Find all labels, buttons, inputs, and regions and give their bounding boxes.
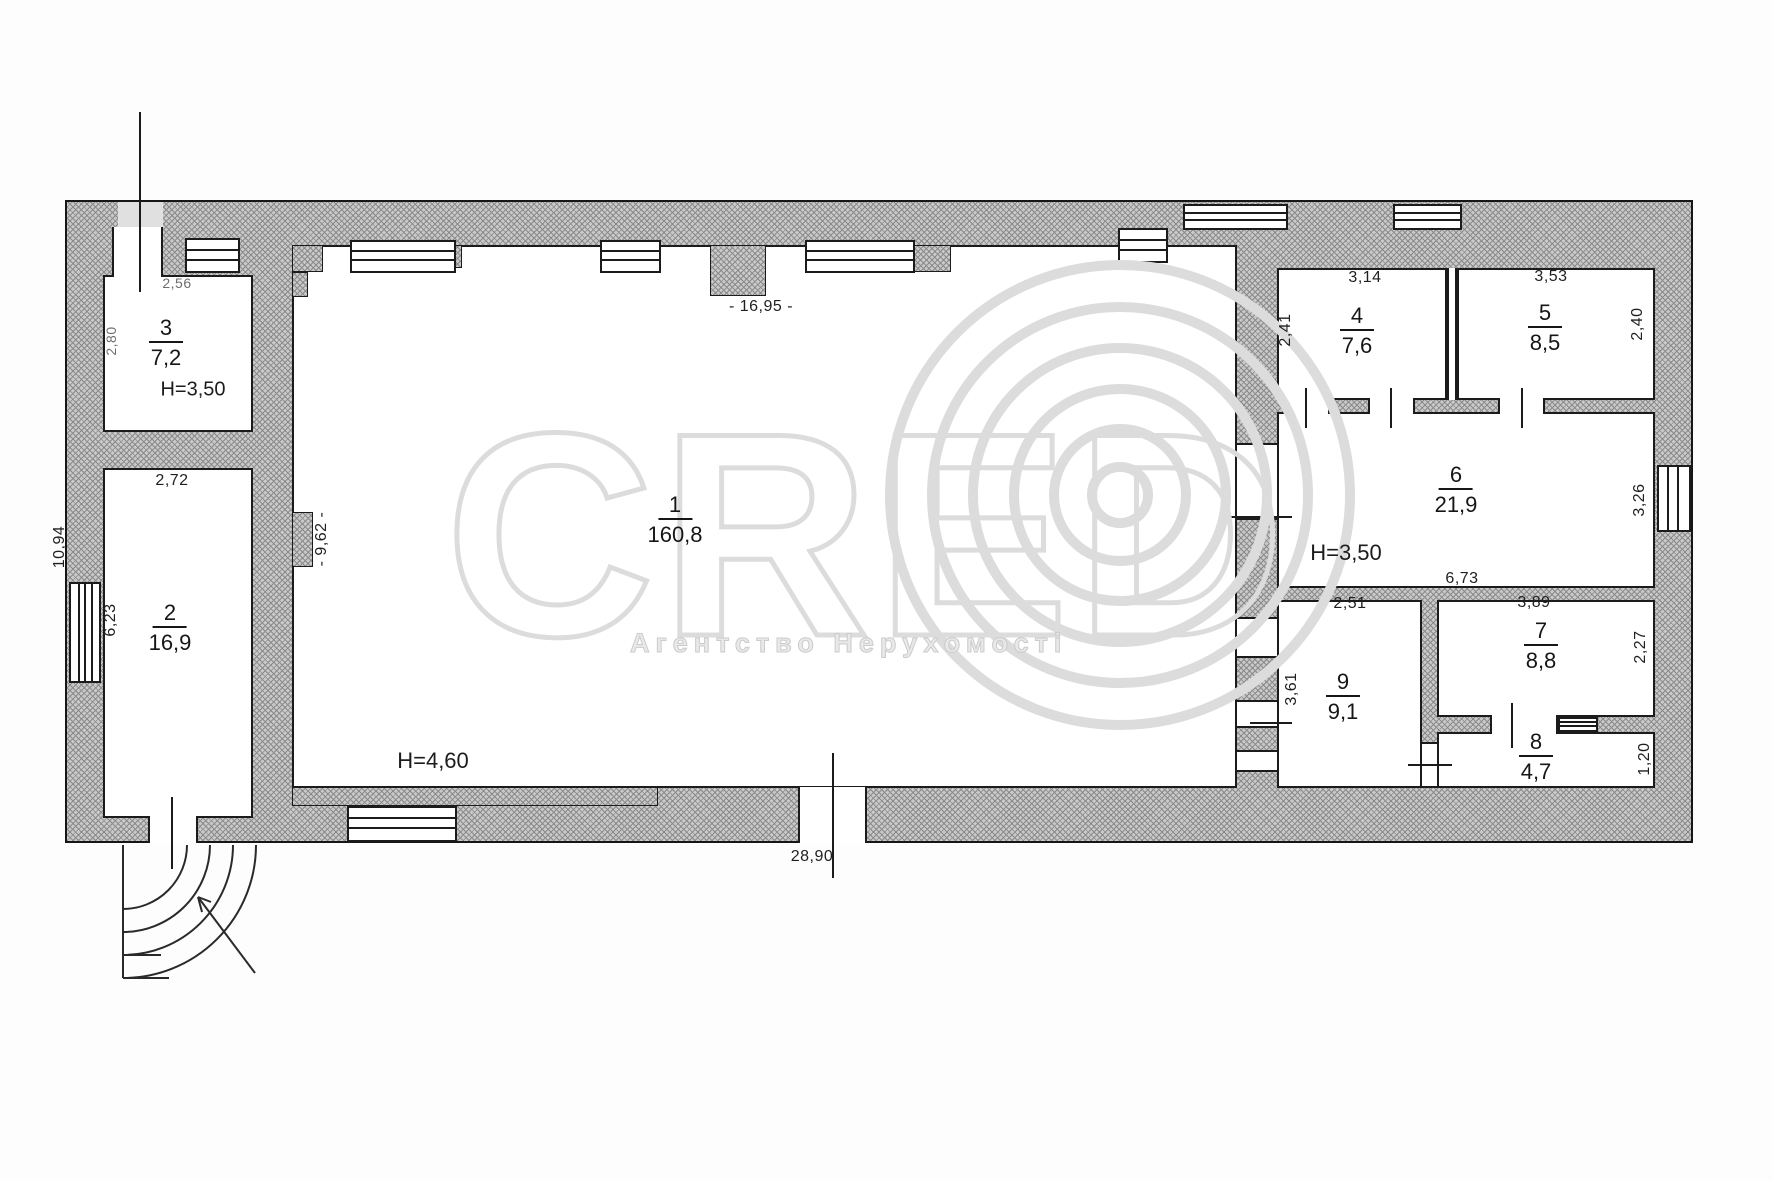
room-7-area: 8,8	[1524, 646, 1558, 673]
wall-step-bottom	[292, 787, 658, 806]
room-7-label: 7 8,8	[1524, 618, 1558, 674]
room-1-area: 160,8	[647, 520, 702, 547]
dim-room2-window: 6,23	[102, 603, 120, 636]
wall-notch-top-center	[710, 245, 766, 296]
dim-room6-width: 6,73	[1445, 570, 1478, 588]
dim-left-outer: 10,94	[51, 526, 69, 569]
door-room2-bottom	[148, 816, 198, 843]
room-5-number: 5	[1528, 300, 1562, 328]
window-top-5	[1118, 228, 1168, 263]
dim-top-width: - 16,95 -	[729, 298, 793, 316]
window-top-4	[805, 240, 915, 273]
room-3-area: 7,2	[149, 343, 183, 370]
dim-bottom-width: 28,90	[791, 848, 834, 866]
dim-room9-width: 2,51	[1333, 595, 1366, 613]
window-top-3	[600, 240, 661, 273]
window-top-2	[350, 240, 456, 273]
height-label-room3: H=3,50	[160, 379, 225, 402]
wall-bump-left	[292, 512, 313, 567]
room-6-number: 6	[1439, 462, 1473, 490]
room-1-number: 1	[658, 492, 692, 520]
door-hall-right-4	[1237, 750, 1277, 772]
height-label-hall: H=4,60	[397, 748, 469, 774]
dim-room9-depth: 3,61	[1283, 672, 1301, 705]
tick-room9-door	[1408, 764, 1452, 766]
room-4-area: 7,6	[1340, 331, 1374, 358]
tick-hall-right-door-1	[1222, 516, 1292, 518]
room-9-area: 9,1	[1326, 697, 1360, 724]
room-7-number: 7	[1524, 618, 1558, 646]
room-8-number: 8	[1519, 729, 1553, 757]
wall-step-top-left-1	[292, 245, 323, 272]
window-bottom-wall	[347, 806, 457, 842]
wall-step-top-left-2	[292, 272, 308, 297]
partition-room4-room5	[1447, 268, 1457, 400]
dim-room5-depth: 2,40	[1629, 307, 1647, 340]
window-top-1	[185, 238, 240, 273]
tick-room4-door-b	[1390, 388, 1392, 428]
room-1	[292, 245, 1237, 788]
wall-bump-top-b	[913, 245, 951, 272]
dim-room3-width: 2,56	[162, 275, 191, 291]
room-6-label: 6 21,9	[1435, 462, 1478, 518]
dim-room4-width: 3,14	[1348, 269, 1381, 287]
room-2-area: 16,9	[149, 628, 192, 655]
tick-room3-door	[139, 112, 141, 292]
window-left-wall	[69, 582, 101, 683]
window-right-wall	[1657, 465, 1691, 532]
room-3-label: 3 7,2	[149, 315, 183, 371]
door-hall-right-2	[1237, 617, 1277, 658]
room-5-area: 8,5	[1528, 328, 1562, 355]
room-4-number: 4	[1340, 303, 1374, 331]
tick-room5-door	[1521, 388, 1523, 428]
tick-room4-door-a	[1305, 388, 1307, 428]
dim-room7-depth: 2,27	[1632, 630, 1650, 663]
dim-room5-width: 3,53	[1534, 268, 1567, 286]
door-room3-top	[112, 227, 163, 277]
dim-hall-left: - 9,62 -	[313, 512, 331, 567]
room-3-number: 3	[149, 315, 183, 343]
floor-plan-canvas: CRED Агентство Нерухомості 1 160,8 2 16,…	[0, 0, 1772, 1181]
room-4-label: 4 7,6	[1340, 303, 1374, 359]
room-2-number: 2	[153, 600, 187, 628]
dim-room2-width: 2,72	[155, 472, 188, 490]
room-9-number: 9	[1326, 669, 1360, 697]
height-label-room6: H=3,50	[1310, 540, 1382, 566]
room-8-label: 8 4,7	[1519, 729, 1553, 785]
dim-room3-depth: 2,80	[103, 326, 119, 355]
dim-room8-depth: 1,20	[1636, 742, 1654, 775]
room-2-label: 2 16,9	[149, 600, 192, 656]
dim-room4-depth: 2,41	[1277, 313, 1295, 346]
door-hall-right-1	[1237, 443, 1277, 520]
room-8-area: 4,7	[1519, 757, 1553, 784]
entrance-steps	[95, 845, 335, 983]
room-5-label: 5 8,5	[1528, 300, 1562, 356]
window-top-6	[1183, 204, 1288, 230]
dim-room7-width: 3,89	[1517, 594, 1550, 612]
room-9-label: 9 9,1	[1326, 669, 1360, 725]
tick-room8-door	[1511, 703, 1513, 748]
window-top-7	[1393, 204, 1462, 230]
tick-hall-right-door-3	[1250, 722, 1292, 724]
dim-room6-window: 3,26	[1631, 483, 1649, 516]
window-transom-room8	[1558, 717, 1598, 732]
room-1-label: 1 160,8	[647, 492, 702, 548]
room-6-area: 21,9	[1435, 490, 1478, 517]
